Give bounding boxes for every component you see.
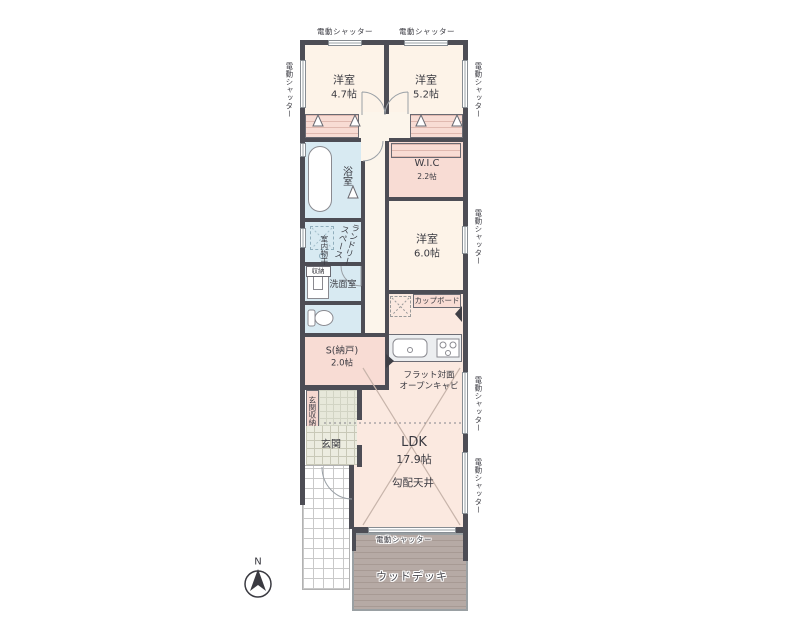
wall <box>357 445 362 467</box>
hall-upper <box>359 112 411 141</box>
window <box>462 372 468 434</box>
window <box>328 40 362 46</box>
room-toilet <box>302 305 361 333</box>
wall <box>389 290 463 294</box>
shutter-label-right-ldk-lower: 電動シャッター <box>473 458 483 514</box>
compass-north-label: N <box>254 556 261 569</box>
window <box>300 60 306 108</box>
kitchen-counter <box>388 334 462 362</box>
label-cupboard: カップボード <box>415 296 460 306</box>
wall <box>305 138 361 142</box>
wall <box>384 45 389 114</box>
room-label-ldk: LDK 17.9帖 <box>396 435 432 469</box>
window <box>404 40 448 46</box>
wall <box>352 533 356 551</box>
window <box>462 60 468 108</box>
wall <box>300 385 389 390</box>
label-kitchen-counter-note: フラット対面 オープンキャビ <box>400 371 459 394</box>
wall <box>349 465 354 529</box>
window <box>368 527 456 533</box>
label-entrance-storage: 玄関収納 <box>307 396 317 426</box>
room-label-bathroom: 浴室 <box>340 166 353 186</box>
room-label-storage: S(納戸) 2.0帖 <box>326 346 358 371</box>
shutter-label-top-left: 電動シャッター <box>317 27 373 37</box>
shutter-label-deck: 電動シャッター <box>376 535 432 545</box>
fridge-space-icon <box>390 296 411 317</box>
wall <box>389 138 463 142</box>
label-wood-deck: ウッドデッキ <box>376 570 448 584</box>
entrance-hall-floor <box>319 390 357 426</box>
room-label-bedroom3: 洋室 6.0帖 <box>414 233 440 262</box>
wall <box>357 388 362 420</box>
floor-plan: 洋室 4.7帖 洋室 5.2帖 W.I.C 2.2帖 洋室 6.0帖 浴室 ラン… <box>0 0 800 640</box>
compass-icon <box>245 569 271 597</box>
wall <box>300 45 305 465</box>
closet-bedroom1 <box>305 114 359 138</box>
window <box>300 143 306 157</box>
wall <box>463 533 468 561</box>
bathtub-icon <box>308 146 332 212</box>
label-small-closet: 収納 <box>312 267 325 275</box>
wall <box>302 333 389 337</box>
room-label-entrance: 玄関 <box>321 439 341 452</box>
room-label-wic: W.I.C 2.2帖 <box>414 157 439 183</box>
shutter-label-right-ldk-upper: 電動シャッター <box>473 376 483 432</box>
label-indoor-drying: 室内物干 <box>319 235 329 265</box>
shutter-label-right-bedroom3: 電動シャッター <box>473 209 483 265</box>
wall <box>302 301 361 305</box>
vanity-bowl-icon <box>313 276 323 290</box>
window <box>462 226 468 254</box>
room-label-washroom: 洗面室 <box>329 280 356 292</box>
window <box>300 228 306 248</box>
wic-hanger-strip <box>391 143 461 158</box>
shutter-label-right-bedroom2: 電動シャッター <box>473 62 483 118</box>
label-sloped-ceiling: 勾配天井 <box>392 477 434 491</box>
wall <box>302 262 361 266</box>
window <box>462 452 468 514</box>
wall <box>302 218 361 222</box>
room-label-bedroom2: 洋室 5.2帖 <box>413 74 439 103</box>
wall <box>389 197 463 201</box>
room-label-bedroom1: 洋室 4.7帖 <box>331 74 357 103</box>
porch-tiles <box>302 465 350 590</box>
wall <box>385 141 389 387</box>
shutter-label-left: 電動シャッター <box>284 62 294 118</box>
closet-bedroom2 <box>410 114 463 138</box>
wall <box>300 465 305 505</box>
wall <box>361 161 365 337</box>
shutter-label-top-right: 電動シャッター <box>399 27 455 37</box>
